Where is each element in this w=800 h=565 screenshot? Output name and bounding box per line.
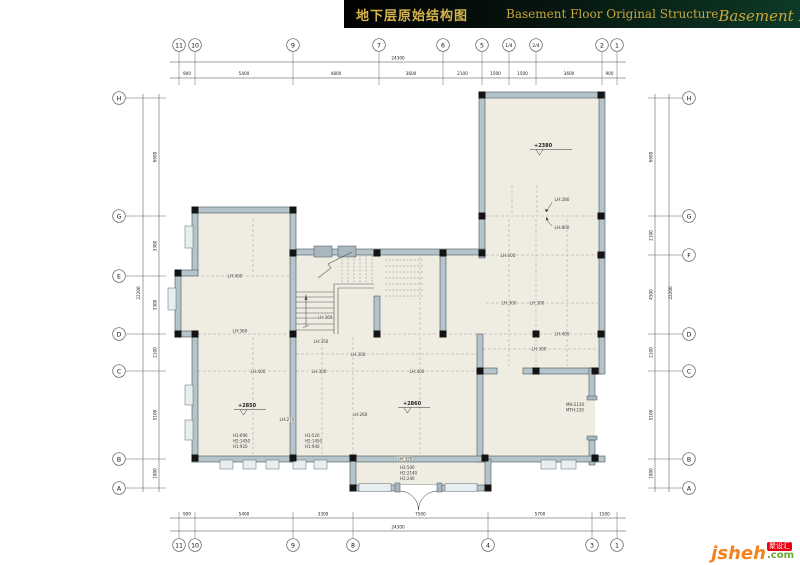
svg-text:4: 4 [486, 542, 490, 549]
beam-label: LH:300 [312, 369, 327, 374]
svg-text:3300: 3300 [153, 240, 158, 251]
svg-text:F: F [687, 252, 691, 259]
svg-text:4500: 4500 [649, 289, 654, 300]
svg-text:5700: 5700 [535, 512, 546, 517]
svg-text:3600: 3600 [406, 71, 417, 76]
svg-text:3300: 3300 [318, 512, 329, 517]
svg-text:5400: 5400 [239, 512, 250, 517]
svg-text:10: 10 [191, 42, 199, 49]
svg-text:9: 9 [291, 42, 295, 49]
svg-text:900: 900 [183, 71, 191, 76]
door-spec-line: MH:2130 [566, 402, 584, 407]
svg-text:1/4: 1/4 [505, 43, 512, 49]
beam-label: LH:300 [530, 301, 545, 306]
svg-text:B: B [687, 456, 691, 463]
dim-total-bottom: 24300 [391, 525, 405, 530]
beam-label: LH:400 [555, 332, 570, 337]
window-spec-line: H3:500 [400, 465, 415, 470]
svg-text:2: 2 [600, 42, 604, 49]
svg-text:5400: 5400 [239, 71, 250, 76]
svg-text:C: C [687, 368, 691, 375]
window-spec-line: H1:920 [233, 444, 248, 449]
svg-text:11: 11 [175, 542, 183, 549]
svg-text:4800: 4800 [331, 71, 342, 76]
level-label: +2860 [403, 401, 422, 407]
beam-label: LH:350 [314, 339, 329, 344]
logo-brand-text: jsheh [711, 547, 766, 561]
svg-text:2100: 2100 [153, 347, 158, 358]
floor-areas [175, 92, 605, 491]
svg-text:1500: 1500 [517, 71, 528, 76]
dim-total-right: 22200 [668, 286, 673, 300]
svg-text:1500: 1500 [490, 71, 501, 76]
svg-text:C: C [117, 368, 121, 375]
beam-label: LH:360 [233, 329, 248, 334]
dim-total-left: 22200 [136, 286, 141, 300]
svg-text:H: H [687, 95, 692, 102]
entry-door-swing [400, 491, 437, 510]
beam-label: LH:400 [251, 369, 266, 374]
svg-text:9: 9 [291, 542, 295, 549]
level-label: +2850 [238, 403, 257, 409]
svg-text:1500: 1500 [599, 512, 610, 517]
svg-text:1800: 1800 [649, 468, 654, 479]
svg-text:1800: 1800 [153, 468, 158, 479]
window-spec-line: H3:690 [233, 433, 248, 438]
svg-text:2100: 2100 [457, 71, 468, 76]
door-spec-line: MTH:230 [566, 408, 584, 413]
svg-text:G: G [117, 213, 122, 220]
svg-text:6: 6 [441, 42, 445, 49]
svg-text:900: 900 [183, 512, 191, 517]
svg-text:5: 5 [480, 42, 484, 49]
beam-label: LH:300 [502, 301, 517, 306]
jsheh-logo[interactable]: jsheh 聚设汇 .com [711, 542, 794, 561]
svg-text:2/4: 2/4 [532, 43, 539, 49]
svg-text:7500: 7500 [415, 512, 426, 517]
svg-text:H: H [117, 95, 122, 102]
svg-text:3300: 3300 [153, 299, 158, 310]
svg-text:2100: 2100 [649, 230, 654, 241]
svg-text:7: 7 [377, 42, 381, 49]
drawing-sheet: 地下层原始结构图 Basement Floor Original Structu… [0, 0, 800, 565]
svg-text:10: 10 [191, 542, 199, 549]
beam-label: LH:600 [501, 253, 516, 258]
beam-label: LH:260 [353, 412, 368, 417]
dim-total-top: 24300 [391, 56, 405, 61]
svg-text:2100: 2100 [649, 347, 654, 358]
window-spec-line: H2:1450 [305, 439, 323, 444]
beam-label: LH:270 [280, 417, 295, 422]
svg-text:8: 8 [351, 542, 355, 549]
beam-label: LH:320 [398, 457, 413, 462]
svg-text:B: B [117, 456, 121, 463]
beam-label: LH:300 [532, 347, 547, 352]
floor-plan-svg: +2380 +2850 +2860 LH:400 LH:360 LH:360 L… [0, 0, 800, 565]
window-spec-line: H2:1450 [233, 439, 251, 444]
svg-text:5100: 5100 [649, 409, 654, 420]
window-spec-line: H1:240 [400, 476, 415, 481]
svg-text:6600: 6600 [153, 151, 158, 162]
svg-text:E: E [117, 273, 121, 280]
svg-text:D: D [687, 331, 692, 338]
svg-text:900: 900 [606, 71, 614, 76]
level-label: +2380 [534, 143, 553, 149]
svg-text:11: 11 [175, 42, 183, 49]
svg-text:1: 1 [615, 42, 619, 49]
window-spec-line: H3:520 [305, 433, 320, 438]
svg-text:5100: 5100 [153, 409, 158, 420]
beam-label: LH:280 [555, 197, 570, 202]
beam-label: LH:360 [318, 315, 333, 320]
window-spec-line: H2:2140 [400, 471, 418, 476]
svg-text:6600: 6600 [649, 151, 654, 162]
svg-text:G: G [687, 213, 692, 220]
logo-tld: .com [767, 551, 794, 561]
beam-label: LH:800 [555, 225, 570, 230]
svg-text:3: 3 [590, 542, 594, 549]
svg-text:3600: 3600 [564, 71, 575, 76]
svg-text:1: 1 [615, 542, 619, 549]
window-spec-line: H1:940 [305, 444, 320, 449]
beam-label: LH:400 [410, 369, 425, 374]
beam-label: LH:300 [351, 352, 366, 357]
svg-text:D: D [117, 331, 122, 338]
beam-label: LH:400 [228, 274, 243, 279]
